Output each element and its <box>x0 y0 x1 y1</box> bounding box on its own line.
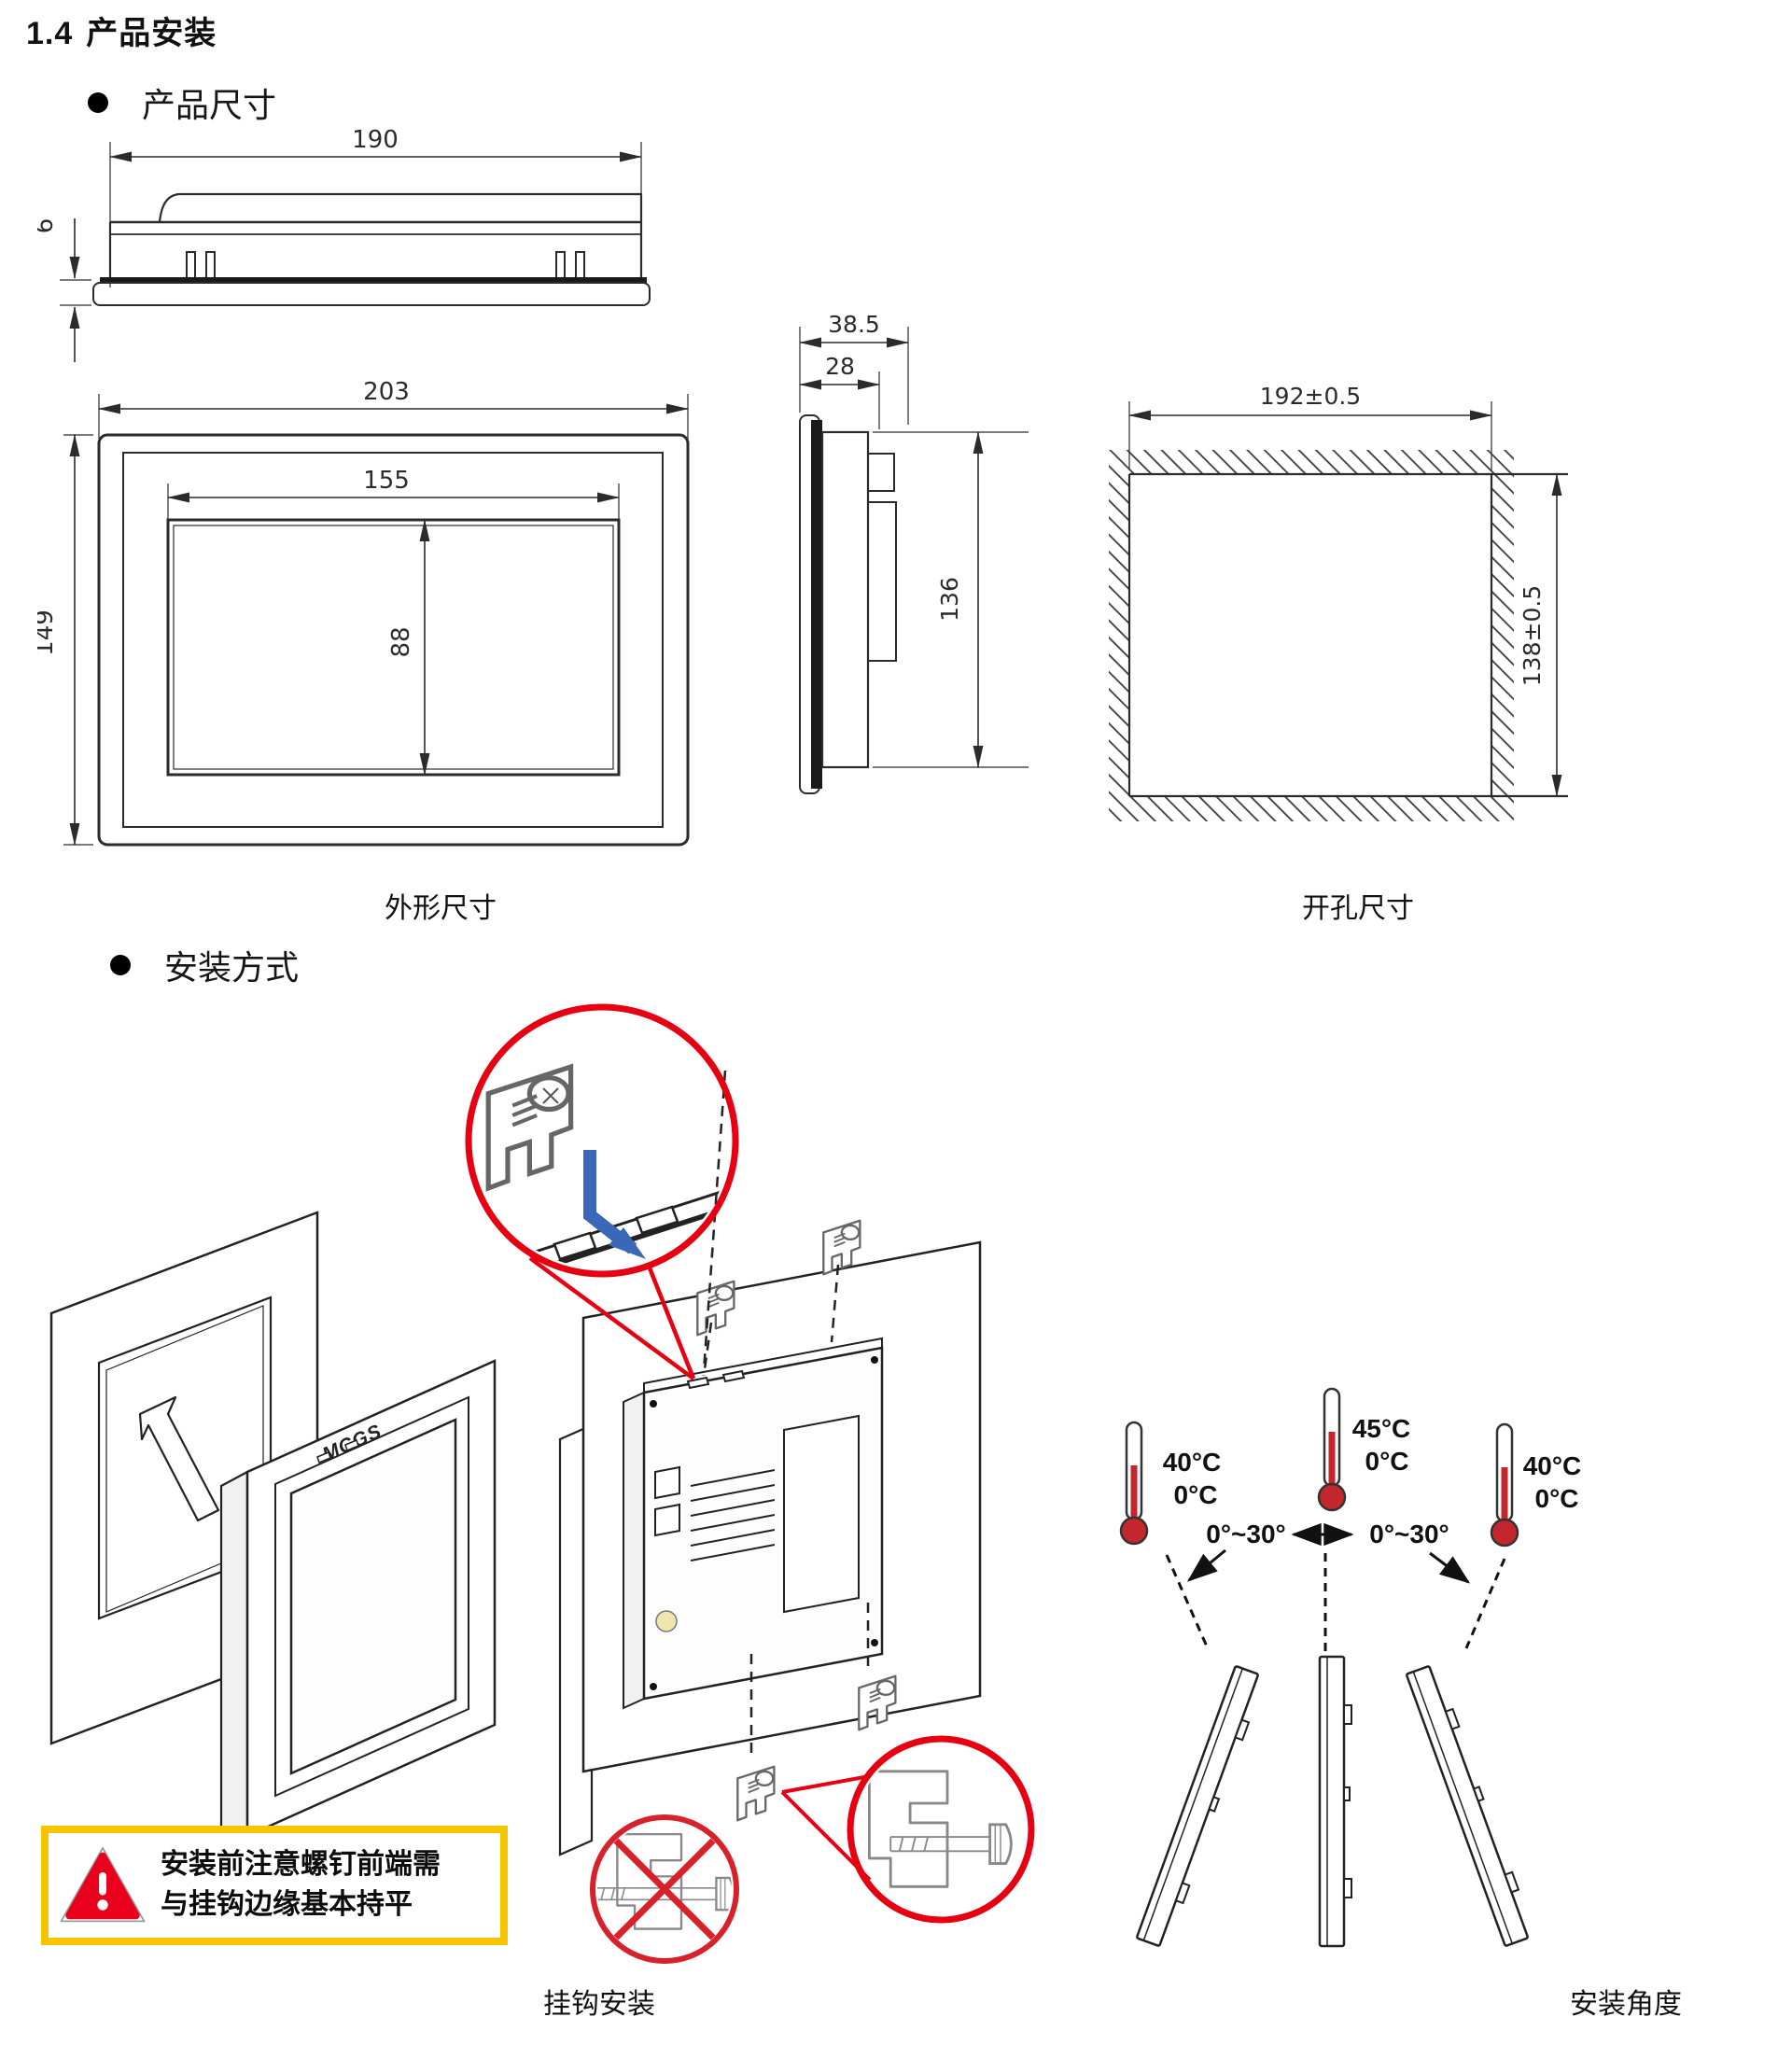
warning-line2: 与挂钩边缘基本持平 <box>161 1885 441 1926</box>
dim-label-cutout-width: 192±0.5 <box>1260 383 1361 410</box>
temp-left-min: 0°C <box>1174 1480 1218 1509</box>
outline-front-view-drawing: 203 155 149 88 <box>37 373 691 877</box>
dim-label-depth-body: 28 <box>825 353 855 380</box>
cutout-drawing: 192±0.5 138±0.5 <box>1101 364 1755 887</box>
rear-assembly <box>583 1242 980 1772</box>
reset-button <box>656 1611 677 1632</box>
caption-outline: 外形尺寸 <box>301 885 581 926</box>
dim-label-outer-height: 149 <box>37 609 59 656</box>
panel-tilt-left <box>1137 1666 1266 1949</box>
warning-box: 安装前注意螺钉前端需 与挂钩边缘基本持平 <box>41 1826 508 1945</box>
warning-triangle-icon <box>58 1843 147 1927</box>
bullet-product-size: 产品尺寸 <box>88 78 276 127</box>
panel-tilt-right <box>1407 1663 1535 1946</box>
manual-page: 1.4产品安装 产品尺寸 190 <box>0 0 1792 2059</box>
section-number: 1.4 <box>26 16 73 51</box>
section-title: 产品安装 <box>86 16 217 51</box>
dim-label-display-height: 88 <box>387 626 415 657</box>
tilt-range-right-label: 0°~30° <box>1369 1520 1449 1548</box>
bullet-icon <box>88 92 108 113</box>
bullet-install-method: 安装方式 <box>110 941 299 989</box>
correct-install-detail <box>850 1739 1031 1920</box>
temp-center-min: 0°C <box>1365 1447 1409 1476</box>
dim-label-depth-total: 38.5 <box>828 311 880 338</box>
caption-install-angle: 安装角度 <box>1486 1981 1766 2022</box>
dim-label-outer-width: 203 <box>363 378 410 406</box>
thermometer-right-icon <box>1491 1424 1518 1546</box>
outline-top-view-drawing: 190 6 <box>37 121 691 364</box>
temp-right-min: 0°C <box>1535 1484 1579 1513</box>
warning-line1: 安装前注意螺钉前端需 <box>161 1845 441 1885</box>
caption-cutout: 开孔尺寸 <box>1218 885 1498 926</box>
tilt-arrow-left <box>1189 1550 1225 1580</box>
tilt-arrow-right <box>1430 1553 1468 1582</box>
wrong-install-detail <box>593 1817 736 1961</box>
outline-side-view-drawing: 38.5 28 136 <box>765 299 1045 877</box>
temp-right-max: 40°C <box>1523 1451 1582 1480</box>
panel-vertical <box>1320 1657 1351 1946</box>
page-title: 1.4产品安装 <box>26 7 217 53</box>
tilt-range-left-label: 0°~30° <box>1206 1520 1285 1548</box>
angle-illustration: 40°C 0°C 45°C 0°C 40°C 0°C 0°~30° 0°~30° <box>1101 1381 1755 1979</box>
dim-label-front-thickness: 6 <box>37 218 59 234</box>
warning-text: 安装前注意螺钉前端需 与挂钩边缘基本持平 <box>161 1845 441 1925</box>
hook-insert-detail <box>469 1007 735 1329</box>
temp-center-max: 45°C <box>1352 1414 1411 1443</box>
thermometer-center-icon <box>1319 1389 1345 1510</box>
cutout-hatch <box>1109 450 1514 821</box>
bullet-install-method-label: 安装方式 <box>164 941 299 989</box>
dim-label-display-width: 155 <box>363 467 410 495</box>
caption-hook-install: 挂钩安装 <box>459 1981 739 2022</box>
thermometer-left-icon <box>1121 1422 1147 1544</box>
bullet-icon <box>110 955 131 975</box>
dim-label-top-width: 190 <box>352 126 399 154</box>
dim-label-body-height: 136 <box>936 577 963 622</box>
bullet-product-size-label: 产品尺寸 <box>142 78 276 127</box>
dim-label-cutout-height: 138±0.5 <box>1519 585 1546 686</box>
temp-left-max: 40°C <box>1163 1448 1222 1477</box>
